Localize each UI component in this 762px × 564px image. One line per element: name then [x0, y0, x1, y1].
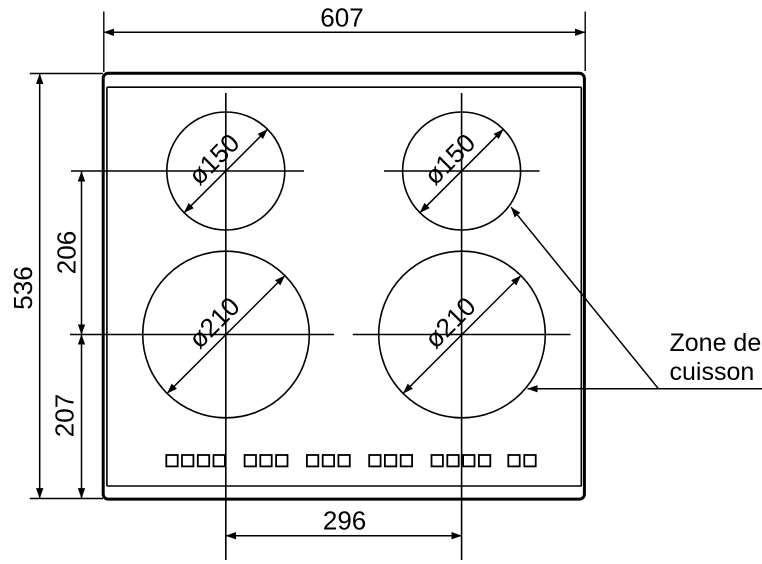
- svg-text:cuisson: cuisson: [670, 358, 755, 386]
- svg-text:207: 207: [50, 394, 80, 437]
- svg-text:296: 296: [323, 506, 366, 536]
- svg-text:607: 607: [320, 3, 363, 33]
- svg-text:536: 536: [8, 266, 38, 309]
- svg-text:Zone de: Zone de: [670, 329, 762, 357]
- svg-text:206: 206: [52, 231, 82, 274]
